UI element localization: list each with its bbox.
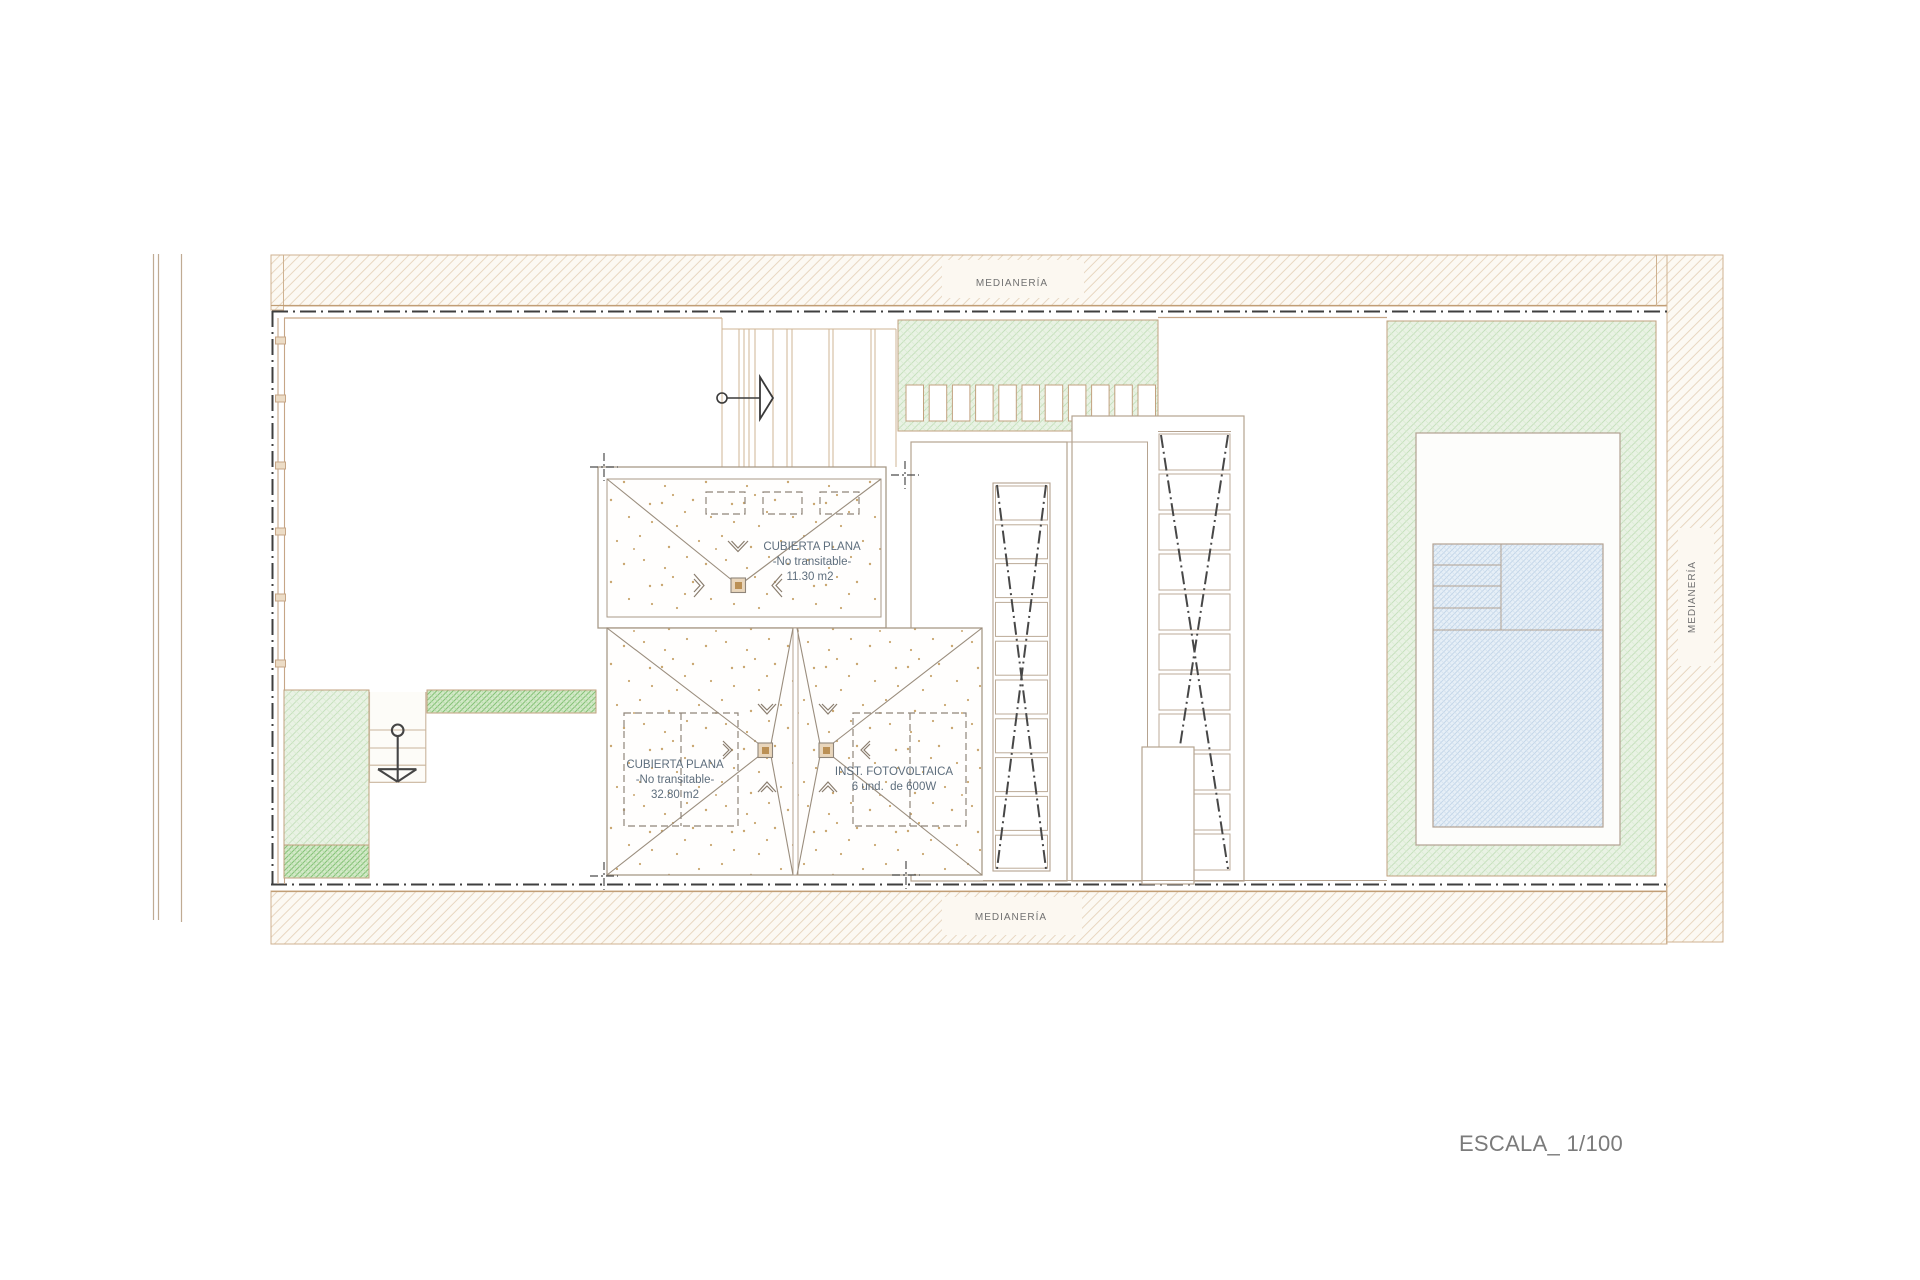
svg-text:-No transitable-: -No transitable-: [773, 556, 852, 568]
svg-text:MEDIANERÍA: MEDIANERÍA: [1685, 561, 1698, 633]
svg-text:CUBIERTA PLANA: CUBIERTA PLANA: [763, 541, 861, 553]
svg-text:CUBIERTA PLANA: CUBIERTA PLANA: [626, 759, 724, 771]
svg-text:6 und. de 600W: 6 und. de 600W: [852, 781, 937, 793]
svg-text:INST. FOTOVOLTAICA: INST. FOTOVOLTAICA: [835, 766, 954, 778]
svg-text:11.30 m2: 11.30 m2: [786, 571, 833, 583]
svg-text:MEDIANERÍA: MEDIANERÍA: [976, 276, 1048, 289]
svg-text:-No transitable-: -No transitable-: [636, 774, 715, 786]
svg-text:MEDIANERÍA: MEDIANERÍA: [975, 910, 1047, 923]
svg-text:ESCALA_ 1/100: ESCALA_ 1/100: [1459, 1131, 1623, 1156]
svg-text:32.80 m2: 32.80 m2: [651, 789, 699, 801]
